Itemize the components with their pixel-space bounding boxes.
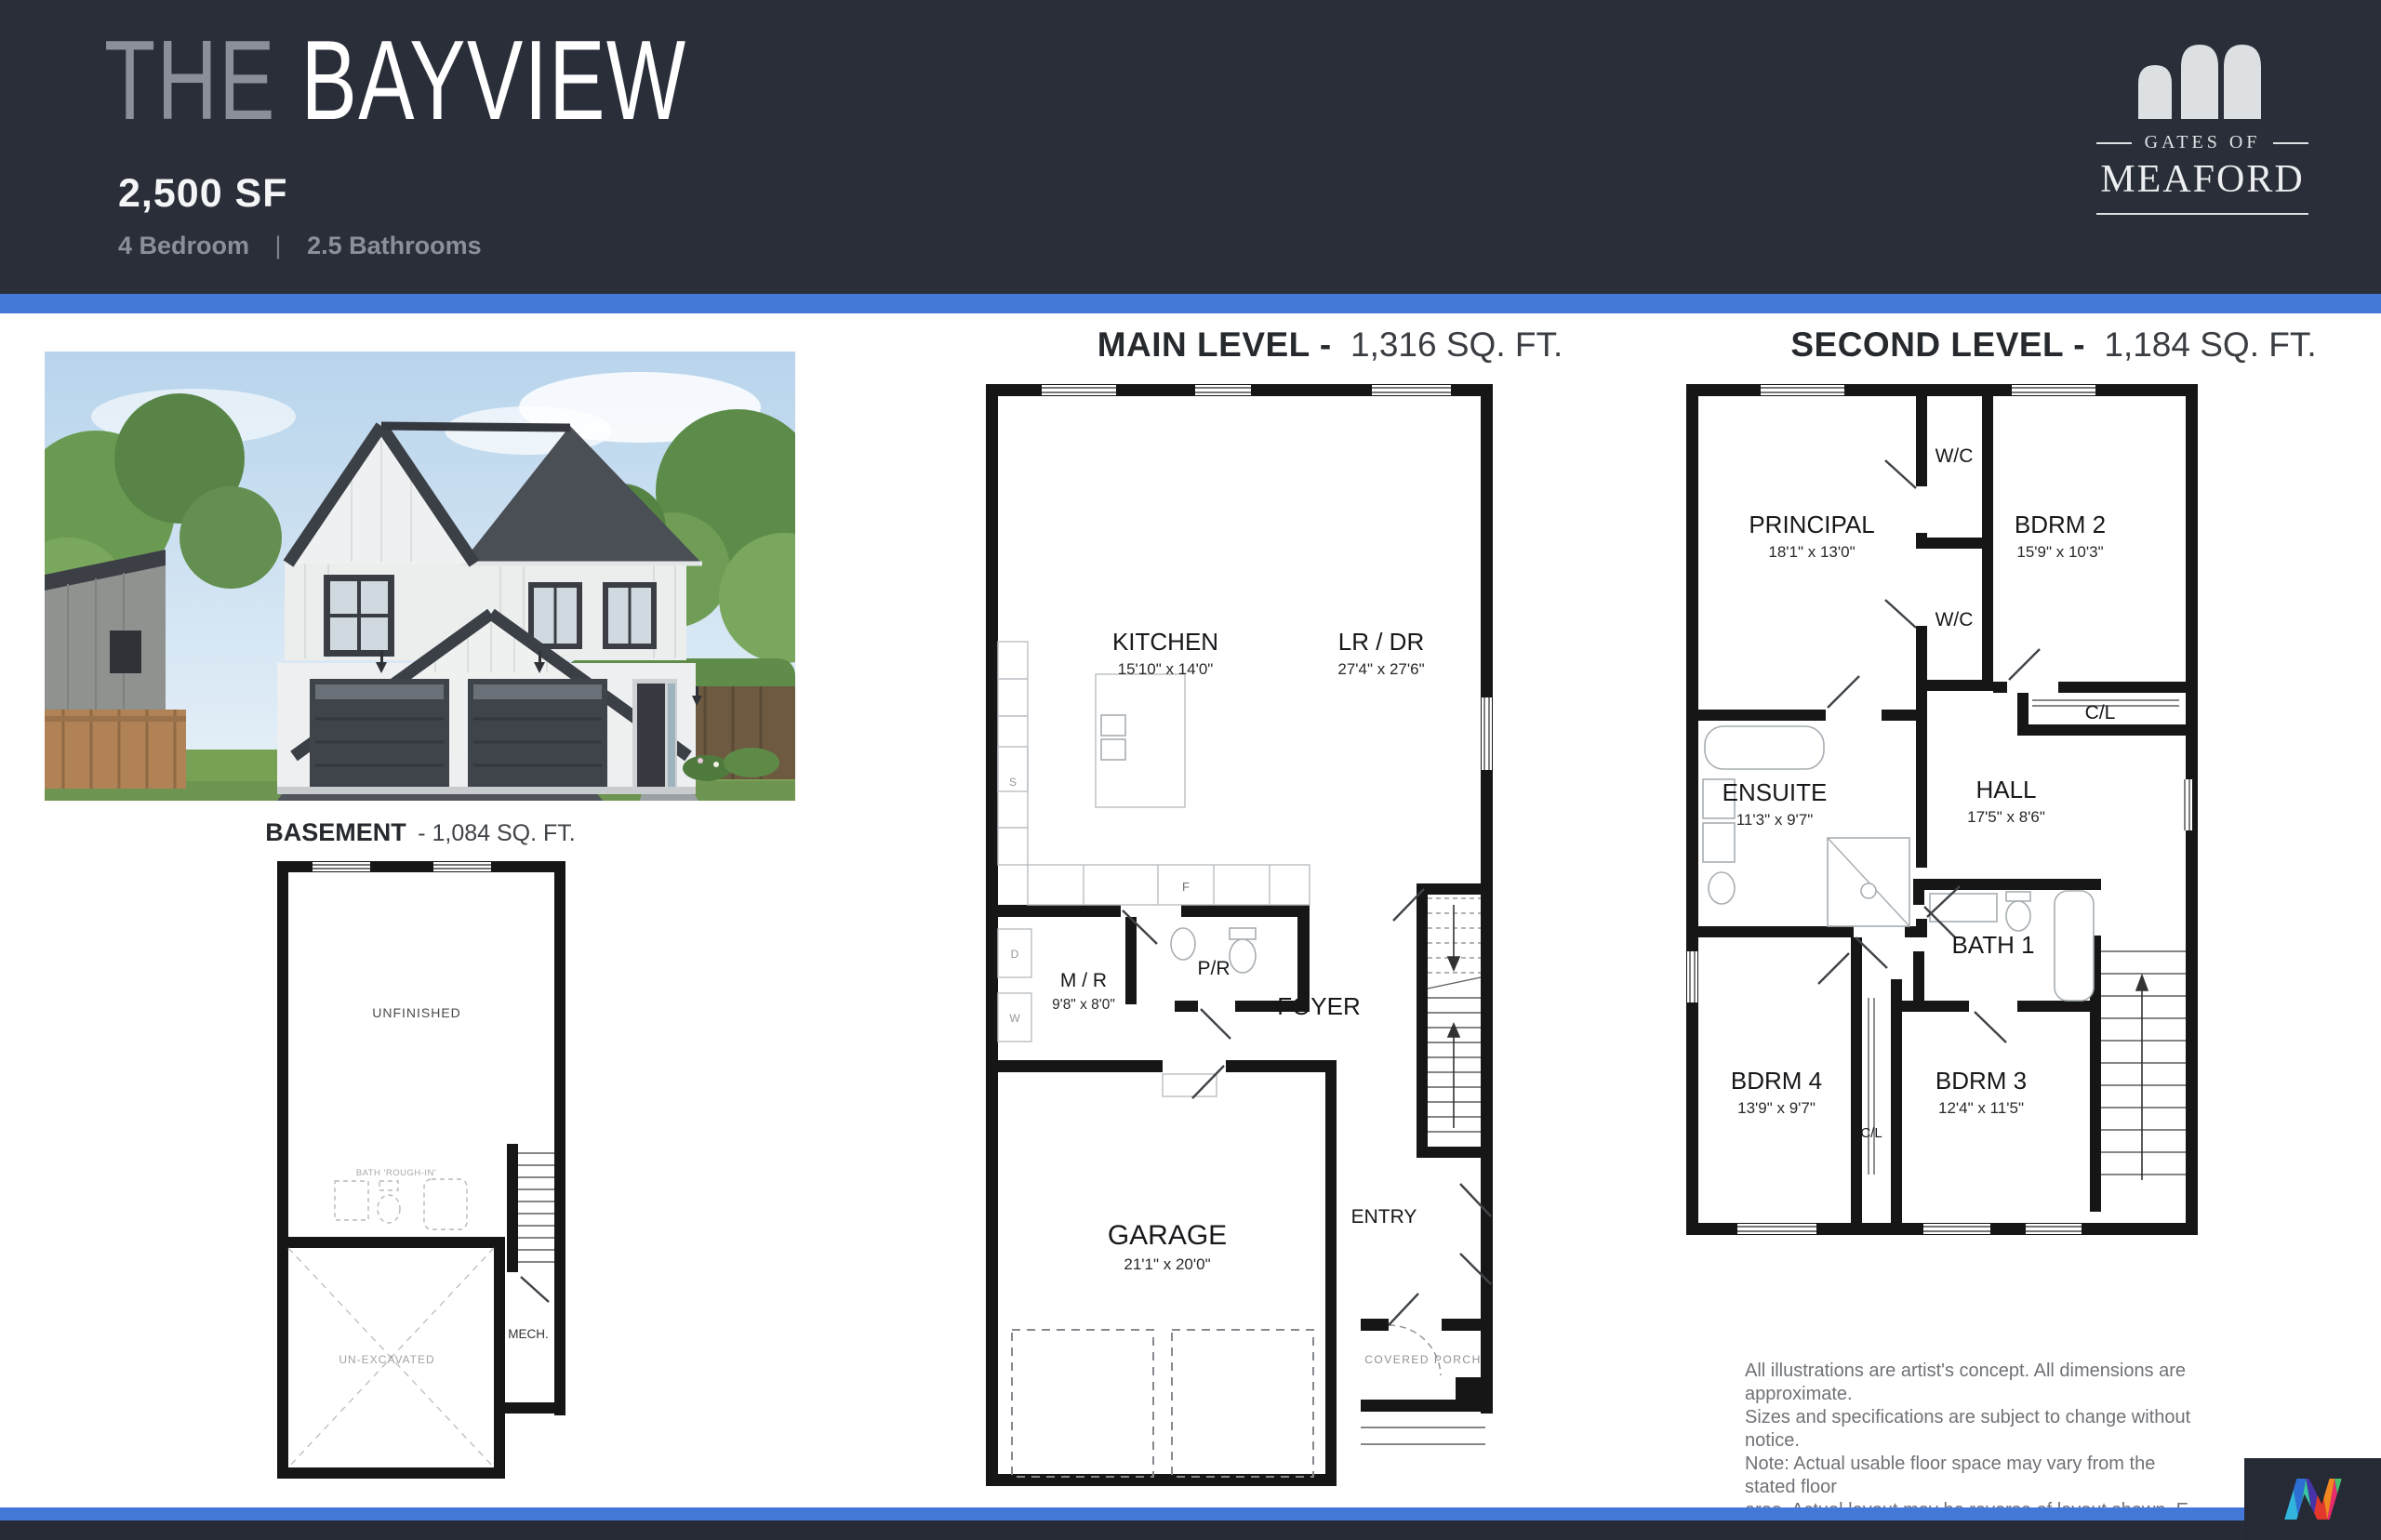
main-level-floorplan: S F D W xyxy=(986,384,1493,1486)
spec-separator: | xyxy=(275,232,282,259)
page-title-the: THE xyxy=(104,17,276,143)
room-label-hall: HALL xyxy=(1975,776,2036,803)
page-title: THE BAYVIEW xyxy=(104,20,687,139)
room-dims-bdrm2: 15'9" x 10'3" xyxy=(2016,543,2103,561)
room-label-mr: M / R xyxy=(1060,970,1107,991)
main-level-title-sqft: 1,316 SQ. FT. xyxy=(1350,325,1563,364)
appliance-dryer-label: D xyxy=(1011,948,1019,961)
appliance-washer-label: W xyxy=(1009,1012,1020,1025)
room-dims-garage: 21'1" x 20'0" xyxy=(1124,1255,1210,1273)
room-label-foyer: FOYER xyxy=(1277,992,1361,1020)
footer-accent-bar xyxy=(0,1507,2381,1520)
disclaimer-line-2: Sizes and specifications are subject to … xyxy=(1745,1406,2210,1453)
second-level-title-sqft: 1,184 SQ. FT. xyxy=(2104,325,2316,364)
room-dims-bdrm3: 12'4" x 11'5" xyxy=(1938,1099,2024,1117)
basement-stairs xyxy=(518,1153,554,1302)
disclaimer-line-3: Note: Actual usable floor space may vary… xyxy=(1745,1453,2210,1499)
second-level-floorplan: PRINCIPAL 18'1" x 13'0" W/C W/C BDRM 2 1… xyxy=(1686,384,2198,1235)
appliance-sink-label: S xyxy=(1009,776,1017,789)
basement-title-sqft: - 1,084 SQ. FT. xyxy=(418,820,576,846)
brand-tagline-row: GATES OF xyxy=(2096,132,2309,153)
total-sqft: 2,500 SF xyxy=(118,171,288,217)
porch-steps xyxy=(1361,1427,1485,1444)
page-title-name: BAYVIEW xyxy=(301,17,687,143)
brand-dash-left xyxy=(2096,142,2132,144)
specs-line: 4 Bedroom | 2.5 Bathrooms xyxy=(118,232,482,260)
disclaimer-line-1: All illustrations are artist's concept. … xyxy=(1745,1360,2210,1406)
main-level-title: MAIN LEVEL - 1,316 SQ. FT. xyxy=(1097,325,1563,365)
room-label-mech: MECH. xyxy=(508,1327,549,1341)
room-label-entry: ENTRY xyxy=(1351,1206,1417,1228)
room-label-pr: P/R xyxy=(1197,958,1230,979)
room-label-bdrm2: BDRM 2 xyxy=(2015,511,2106,538)
room-dims-bdrm4: 13'9" x 9'7" xyxy=(1737,1099,1816,1117)
room-label-bdrm4: BDRM 4 xyxy=(1731,1067,1822,1095)
main-level-windows xyxy=(1042,385,1492,770)
spec-bedrooms: 4 Bedroom xyxy=(118,232,249,259)
room-label-wc2: W/C xyxy=(1935,609,1974,631)
room-label-covered-porch: COVERED PORCH xyxy=(1364,1353,1482,1366)
kitchen-fixtures xyxy=(998,642,1310,905)
basement-floorplan: UNFINISHED BATH 'ROUGH-IN' UN-EXCAVATED … xyxy=(277,854,565,1486)
room-label-garage: GARAGE xyxy=(1108,1220,1227,1251)
second-level-title-label: SECOND LEVEL - xyxy=(1790,325,2085,364)
bath-rough-in-fixtures xyxy=(335,1179,467,1229)
room-dims-lr-dr: 27'4" x 27'6" xyxy=(1337,660,1424,678)
builder-n-logo-icon xyxy=(2284,1479,2342,1520)
room-label-kitchen: KITCHEN xyxy=(1112,628,1218,656)
room-dims-principal: 18'1" x 13'0" xyxy=(1768,543,1855,561)
appliance-fridge-label: F xyxy=(1182,880,1190,894)
main-level-stairs xyxy=(1428,898,1481,1132)
room-dims-hall: 17'5" x 8'6" xyxy=(1967,808,2045,826)
room-label-principal: PRINCIPAL xyxy=(1749,511,1874,538)
front-door xyxy=(632,679,677,787)
room-label-wc1: W/C xyxy=(1935,445,1974,467)
room-label-lr-dr: LR / DR xyxy=(1338,628,1424,656)
brand-underline xyxy=(2096,213,2308,215)
garage-door-outlines xyxy=(1012,1330,1313,1477)
brand-monogram-icon xyxy=(2135,35,2270,121)
brand-logo: GATES OF MEAFORD xyxy=(2091,35,2314,215)
brochure-page: THE BAYVIEW 2,500 SF 4 Bedroom | 2.5 Bat… xyxy=(0,0,2381,1540)
spec-bathrooms: 2.5 Bathrooms xyxy=(307,232,482,259)
room-dims-ensuite: 11'3" x 9'7" xyxy=(1736,811,1814,829)
house-rendering-image xyxy=(45,352,795,801)
brand-name: MEAFORD xyxy=(2100,157,2304,202)
room-dims-mr: 9'8" x 8'0" xyxy=(1052,997,1115,1013)
brand-tagline: GATES OF xyxy=(2145,132,2261,153)
second-level-title: SECOND LEVEL - 1,184 SQ. FT. xyxy=(1790,325,2316,365)
room-label-unfinished: UNFINISHED xyxy=(372,1005,461,1020)
main-level-title-label: MAIN LEVEL - xyxy=(1097,325,1332,364)
room-label-unexcavated: UN-EXCAVATED xyxy=(339,1353,434,1366)
header-accent-bar xyxy=(0,294,2381,313)
room-label-bath-rough-in: BATH 'ROUGH-IN' xyxy=(356,1168,436,1178)
room-label-bdrm3: BDRM 3 xyxy=(1935,1067,2027,1095)
basement-title: BASEMENT - 1,084 SQ. FT. xyxy=(265,818,575,847)
room-label-ensuite: ENSUITE xyxy=(1723,778,1828,806)
footer-band xyxy=(0,1520,2381,1540)
brand-dash-right xyxy=(2273,142,2308,144)
builder-logo-box xyxy=(2244,1458,2381,1540)
room-label-cl2: C/L xyxy=(1860,1125,1882,1141)
header-band: THE BAYVIEW 2,500 SF 4 Bedroom | 2.5 Bat… xyxy=(0,0,2381,294)
room-dims-kitchen: 15'10" x 14'0" xyxy=(1118,660,1214,678)
second-level-stairs xyxy=(2101,951,2186,1180)
room-label-bath1: BATH 1 xyxy=(1951,931,2034,959)
fence-left xyxy=(45,710,186,789)
basement-title-label: BASEMENT xyxy=(265,818,406,846)
room-label-cl1: C/L xyxy=(2085,702,2116,724)
